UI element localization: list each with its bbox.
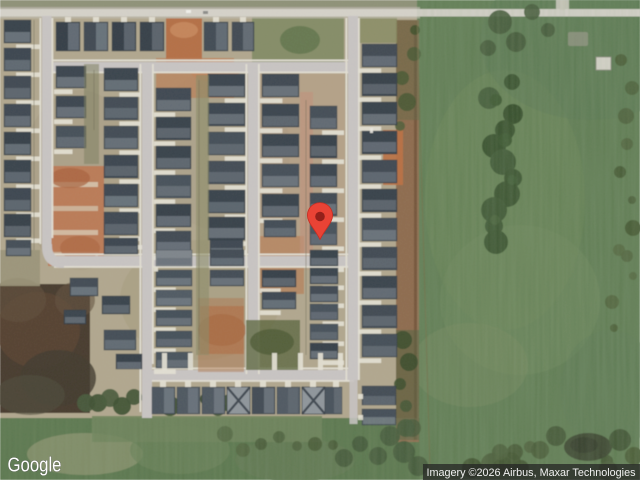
svg-text:Google: Google bbox=[8, 455, 62, 477]
svg-text:Imagery ©2026 Airbus, Maxar Te: Imagery ©2026 Airbus, Maxar Technologies bbox=[427, 467, 637, 479]
